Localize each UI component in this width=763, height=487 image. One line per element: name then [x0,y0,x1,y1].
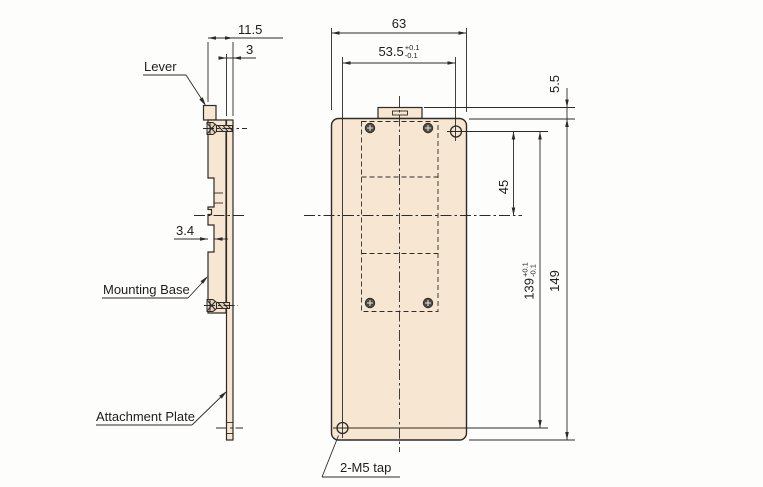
dim-label-overall-thickness: 11.5 [238,23,262,37]
dim-label-hole-to-centerline: 45 [497,180,511,194]
dim-label-plate-thickness: 3 [246,43,253,57]
dim-label-hole-pitch-y: 139 +0.1 -0.1 [522,262,537,300]
dim-tab-height-and-overall-height [565,88,569,440]
dim-label-overall-height: 149 [548,270,562,292]
screw-icon [365,298,375,308]
dim-value: 139 [522,278,536,300]
dim-hole-to-centerline [512,132,516,216]
mounting-base-shape [208,120,226,313]
front-view [304,28,575,477]
tab-shape [378,108,422,119]
tol-minus: -0.1 [405,52,420,60]
dim-label-tab-height: 5.5 [548,75,562,93]
dim-overall-width [332,31,467,35]
lever-shape [204,106,217,121]
dim-plate-thickness [219,54,257,116]
dim-hole-pitch-y [538,132,542,429]
tap-label: 2-M5 tap [340,461,391,475]
lever-label: Lever [144,60,177,74]
technical-drawing: Lever Mounting Base Attachment Plate 2-M… [0,0,763,487]
attachment-plate-label: Attachment Plate [96,410,195,424]
mounting-base-label: Mounting Base [103,283,190,297]
screw-icon [365,123,375,133]
dim-label-hole-pitch-x: 53.5 +0.1 -0.1 [342,44,456,59]
screw-icon [423,298,433,308]
tol-minus: -0.1 [529,262,537,277]
side-view [96,36,283,440]
dim-value: 53.5 [378,45,403,59]
screw-icon [423,123,433,133]
dim-label-notch-depth: 3.4 [176,224,194,238]
attachment-plate-shape [227,120,234,440]
dim-hole-pitch-x [343,61,456,65]
dim-label-overall-width: 63 [331,17,467,31]
plate-shape [332,119,467,441]
